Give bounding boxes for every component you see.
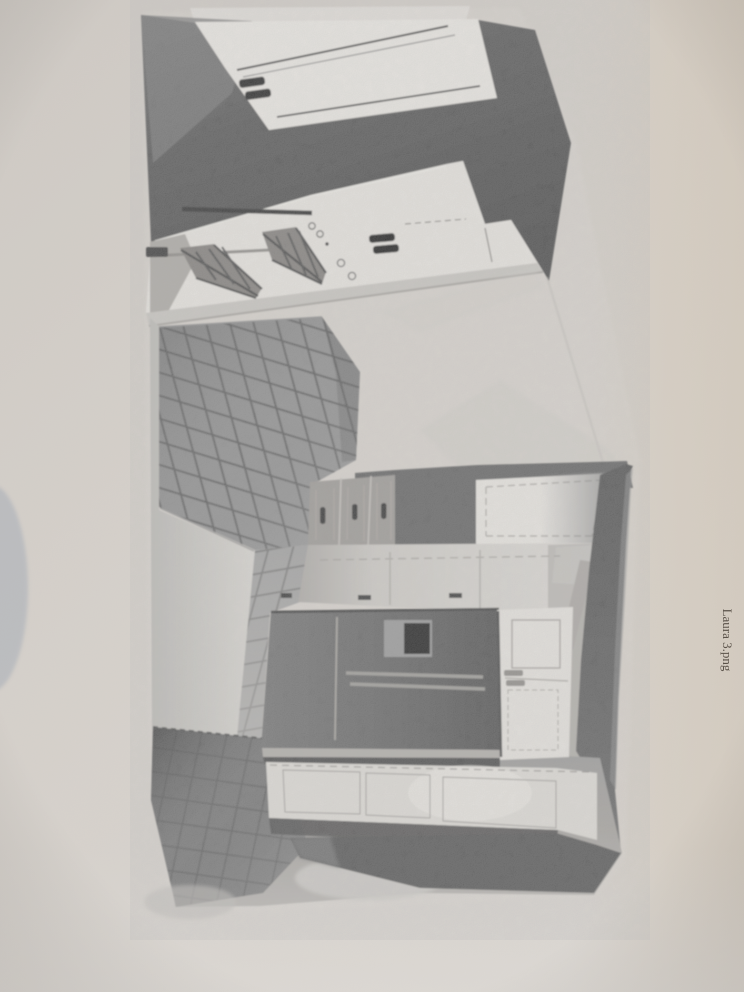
svg-text:Laura 3.png: Laura 3.png (720, 609, 735, 672)
